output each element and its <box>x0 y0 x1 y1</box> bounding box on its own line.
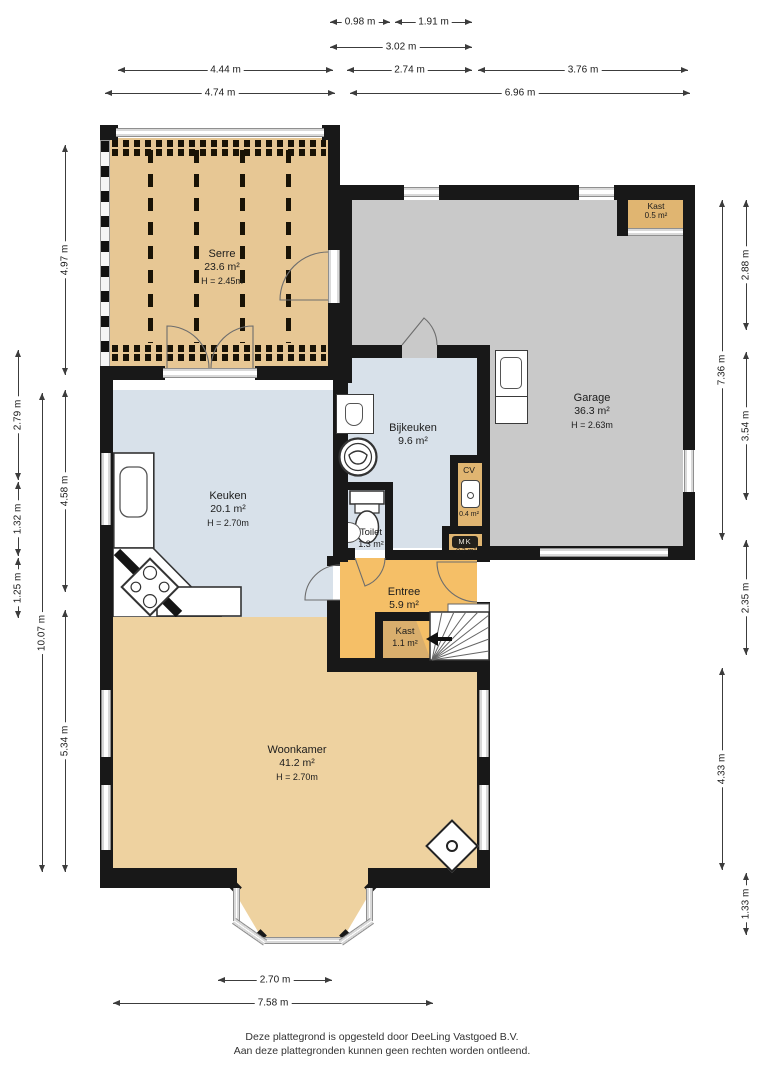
bijkeuken-sink <box>345 403 363 426</box>
dimension-line: 1.33 m <box>746 873 747 935</box>
dimension-line: 3.76 m <box>478 70 688 71</box>
serre-roof-beam <box>286 150 291 343</box>
serre-glass-wall <box>100 140 110 368</box>
serre-roof-dashes <box>112 345 326 352</box>
dimension-line: 4.97 m <box>65 145 66 375</box>
woonkamer-window <box>101 690 111 757</box>
dimension-line: 2.79 m <box>18 350 19 480</box>
serre-top-window <box>116 128 324 137</box>
room-label-entree: Entree 5.9 m² <box>388 586 420 612</box>
garage-door <box>540 548 668 557</box>
garage-counter-divider <box>495 396 528 397</box>
wall <box>477 345 490 457</box>
wall <box>340 185 404 200</box>
wall <box>442 526 449 560</box>
dimension-line: 2.88 m <box>746 200 747 330</box>
wall <box>477 546 490 562</box>
dimension-line: 5.34 m <box>65 610 66 872</box>
dimension-line: 4.44 m <box>118 70 333 71</box>
room-label-garage: Garage 36.3 m² H = 2.63m <box>571 392 613 431</box>
cv-boiler-dial <box>467 492 474 499</box>
wall <box>328 140 340 250</box>
serre-roof-dashes <box>112 354 326 361</box>
wall <box>450 455 482 463</box>
dimension-line: 3.02 m <box>330 47 472 48</box>
room-label-toilet: Toilet 1.3 m² <box>358 527 384 550</box>
dimension-line: 1.32 m <box>18 482 19 556</box>
dimension-line: 2.35 m <box>746 540 747 655</box>
wall <box>100 366 165 380</box>
keuken-window <box>101 453 111 525</box>
garage-window <box>404 187 439 197</box>
room-area-cv: 0.4 m² <box>459 511 479 520</box>
wall <box>683 185 695 450</box>
wall <box>442 526 490 534</box>
dimension-line: 2.70 m <box>218 980 332 981</box>
wall <box>375 612 383 658</box>
woonkamer-window <box>479 690 489 757</box>
wall <box>255 366 340 380</box>
bay-window-floor <box>237 868 368 942</box>
room-label-kast-garage: Kast 0.5 m² <box>645 201 668 221</box>
wall <box>482 455 490 560</box>
wall <box>327 600 340 664</box>
dimension-line: 0.98 m <box>330 22 390 23</box>
woonkamer-window <box>479 785 489 850</box>
wall <box>439 185 579 200</box>
dimension-line: 4.58 m <box>65 390 66 592</box>
kast-garage-sliding-door <box>628 228 683 236</box>
room-label-cv: CV <box>463 465 475 475</box>
dimension-line: 6.96 m <box>350 93 690 94</box>
footer-disclaimer-line2: Aan deze plattegronden kunnen geen recht… <box>0 1045 764 1057</box>
room-label-keuken: Keuken 20.1 m² H = 2.70m <box>207 490 249 529</box>
dimension-line: 1.91 m <box>395 22 472 23</box>
wall <box>340 200 352 358</box>
dimension-line: 7.36 m <box>722 200 723 540</box>
dimension-line: 7.58 m <box>113 1003 433 1004</box>
serre-roof-dashes <box>112 149 326 156</box>
room-label-kast-hal: Kast 1.1 m² <box>392 626 418 649</box>
dimension-line: 2.74 m <box>347 70 472 71</box>
kitchen-counter-and-stove <box>113 450 243 617</box>
dimension-line: 4.74 m <box>105 93 335 94</box>
serre-roof-beam <box>194 150 199 343</box>
room-area-meterkast: 0.3 m² <box>456 548 476 557</box>
wall <box>368 868 490 888</box>
garage-window <box>579 187 614 197</box>
footer-disclaimer-line1: Deze plattegrond is opgesteld door DeeLi… <box>0 1031 764 1043</box>
wall <box>617 200 628 236</box>
wall <box>100 868 237 888</box>
wall <box>450 455 458 530</box>
bay-window-side <box>366 888 373 921</box>
dimension-line: 1.25 m <box>18 558 19 618</box>
wall <box>322 125 340 140</box>
serre-roof-beam <box>240 150 245 343</box>
serre-side-door-opening <box>328 250 340 303</box>
serre-sliding-door <box>163 368 257 378</box>
garage-window <box>684 450 694 492</box>
room-label-bijkeuken: Bijkeuken 9.6 m² <box>389 422 437 448</box>
meterkast-badge: MK <box>452 536 478 548</box>
wall <box>327 556 340 566</box>
bay-window-side <box>233 888 240 921</box>
room-label-woonkamer: Woonkamer 41.2 m² H = 2.70m <box>267 744 326 783</box>
room-label-serre: Serre 23.6 m² H = 2.45m <box>201 248 243 287</box>
serre-roof-beam <box>148 150 153 343</box>
dimension-line: 3.54 m <box>746 352 747 500</box>
washing-machine-icon <box>337 436 379 478</box>
dimension-line: 10.07 m <box>42 393 43 872</box>
wall <box>340 345 402 358</box>
staircase <box>416 601 492 661</box>
woonkamer-window <box>101 785 111 850</box>
dimension-line: 4.33 m <box>722 668 723 870</box>
fireplace-flue <box>446 840 458 852</box>
bay-window-front <box>262 937 344 944</box>
floor-plan: Serre 23.6 m² H = 2.45m Garage 36.3 m² H… <box>0 0 764 1080</box>
garage-sink <box>500 357 522 389</box>
serre-roof-dashes <box>112 140 326 147</box>
